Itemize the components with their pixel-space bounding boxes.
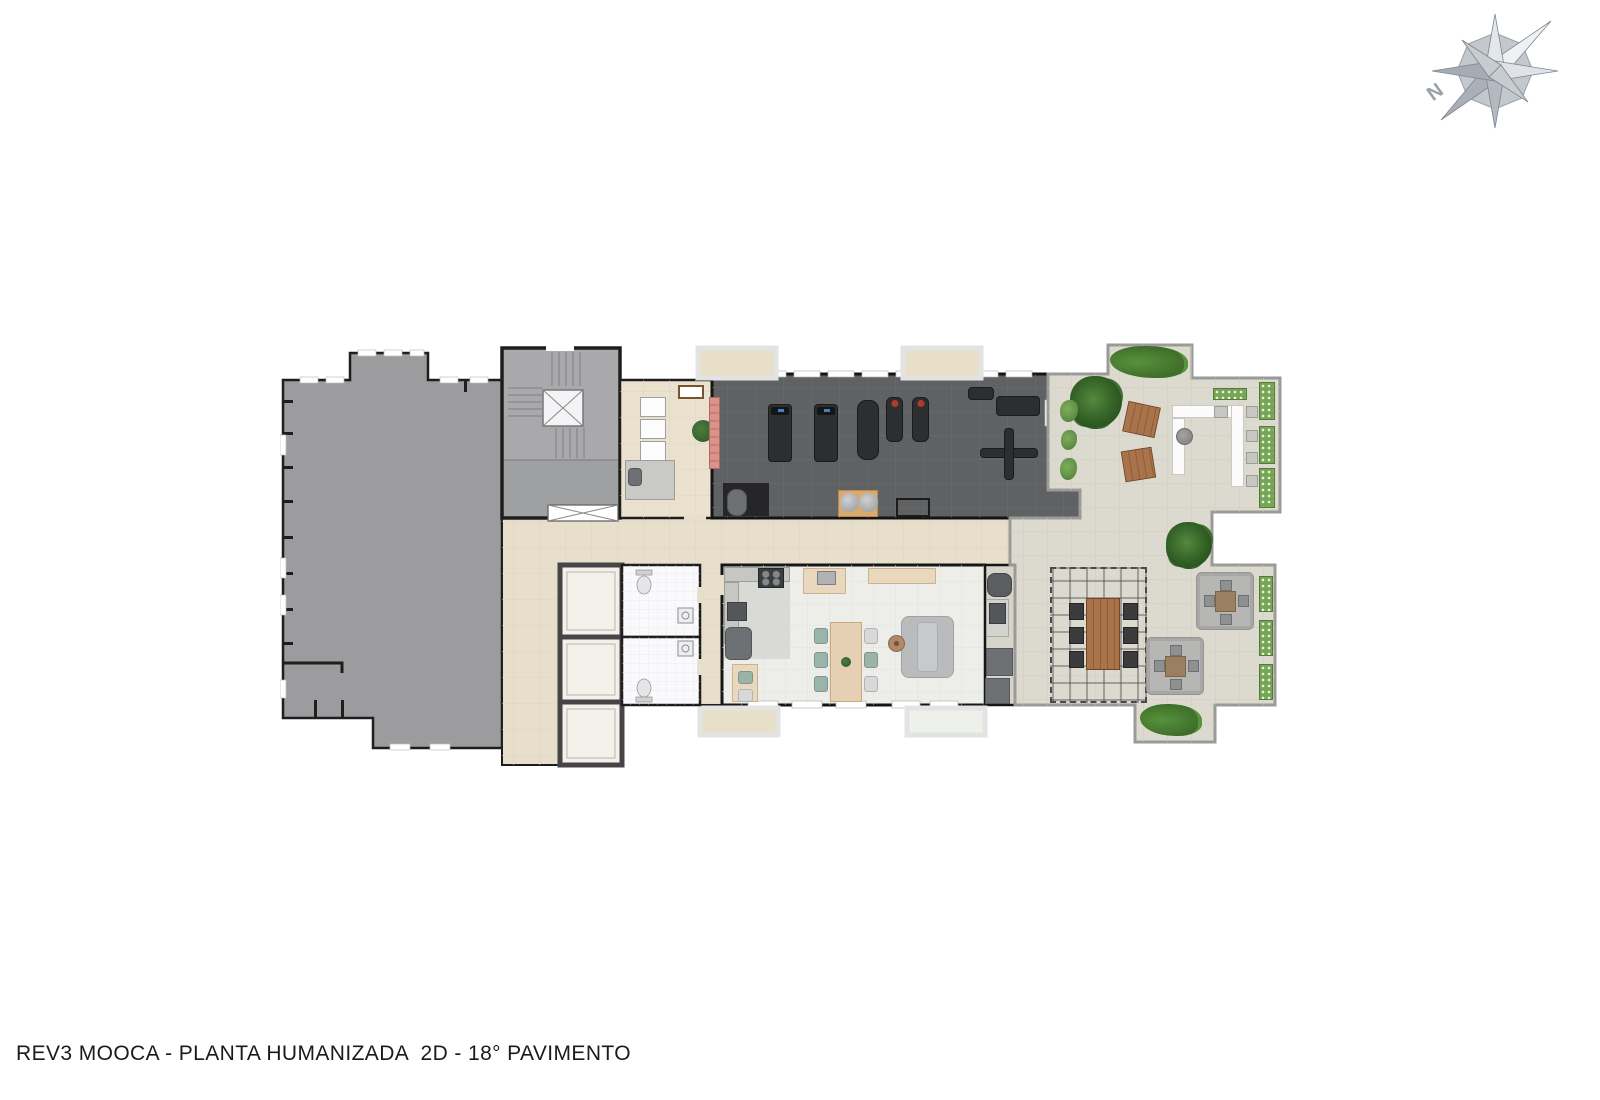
cabinet-box xyxy=(640,397,666,417)
hedge-planter xyxy=(1259,382,1275,420)
elevator-bank xyxy=(560,565,622,765)
hedge-planter xyxy=(1259,426,1275,464)
treadmill xyxy=(814,404,838,462)
cabinet-box xyxy=(640,419,666,439)
floor-plan xyxy=(280,340,1285,770)
cabinet-box xyxy=(640,441,666,461)
stool xyxy=(1246,452,1258,464)
barbecue-grill xyxy=(986,648,1013,676)
coffee-table xyxy=(888,635,905,652)
left-wing-area xyxy=(283,353,502,748)
chair xyxy=(738,671,753,684)
chair xyxy=(864,652,878,668)
multi-gym-bar xyxy=(1004,428,1014,480)
bench-seat xyxy=(709,397,720,469)
stool xyxy=(1246,430,1258,442)
shaft-hatch xyxy=(548,505,618,521)
chair xyxy=(864,628,878,644)
buffet-sink xyxy=(817,571,836,585)
outdoor-cooktop xyxy=(989,603,1006,624)
chair xyxy=(1123,603,1138,620)
chair xyxy=(1170,645,1182,656)
chair xyxy=(1220,580,1232,591)
plan-title: REV3 MOOCA - PLANTA HUMANIZADA 2D - 18° … xyxy=(16,1042,631,1066)
chair xyxy=(738,689,753,702)
chair xyxy=(1123,627,1138,644)
stair-door-opening xyxy=(546,345,574,351)
outdoor-dining-table xyxy=(1086,598,1120,670)
chair xyxy=(1069,627,1084,644)
wood-deck-lounger xyxy=(1122,401,1161,438)
exercise-ball xyxy=(840,493,859,512)
chair xyxy=(1220,614,1232,625)
treadmill xyxy=(768,404,792,462)
terrace-counter xyxy=(1231,405,1244,487)
chair xyxy=(1170,679,1182,690)
cooktop-stove xyxy=(758,568,784,588)
compass-star xyxy=(1432,14,1558,128)
water-dispenser xyxy=(727,489,747,516)
compass-rose: N xyxy=(1398,8,1578,143)
bathroom-1 xyxy=(622,565,703,637)
compass-north-label: N xyxy=(1423,79,1448,105)
chair xyxy=(814,628,828,644)
sideboard xyxy=(868,568,936,584)
stool xyxy=(1246,406,1258,418)
spin-bike xyxy=(912,397,929,442)
chair xyxy=(1069,603,1084,620)
elliptical-trainer xyxy=(857,400,879,460)
hedge-planter xyxy=(1259,576,1273,612)
floor-mat xyxy=(896,498,930,517)
bathroom-2 xyxy=(622,637,703,705)
spin-bike xyxy=(886,397,903,442)
chair xyxy=(1238,595,1249,607)
chair xyxy=(1188,660,1199,672)
support-room-door-opening xyxy=(684,514,706,521)
terrace-counter xyxy=(1172,418,1185,475)
bench-press xyxy=(996,396,1040,416)
hedge-planter xyxy=(1259,468,1275,508)
hedge-planter xyxy=(1259,664,1273,700)
chair xyxy=(814,652,828,668)
exercise-ball xyxy=(859,493,878,512)
page: N xyxy=(0,0,1600,1100)
patio-table xyxy=(1165,656,1186,677)
waste-bin xyxy=(628,468,642,486)
microwave xyxy=(727,602,747,621)
wood-deck-lounger xyxy=(1121,447,1156,482)
stool xyxy=(1246,475,1258,487)
stair-elevator-shaft xyxy=(543,390,583,426)
barbecue-grill xyxy=(985,678,1010,704)
dumbbell-rack xyxy=(968,387,994,400)
hedge-planter xyxy=(1259,620,1273,656)
chair xyxy=(814,676,828,692)
stone-feature xyxy=(1176,428,1193,445)
table-plant xyxy=(841,657,851,667)
kamado-grill xyxy=(987,573,1012,597)
chair xyxy=(1154,660,1165,672)
chair xyxy=(1069,651,1084,668)
chair xyxy=(864,676,878,692)
coffee-counter xyxy=(678,385,704,399)
stool xyxy=(1214,406,1228,418)
chair xyxy=(1204,595,1215,607)
refrigerator xyxy=(725,627,752,660)
patio-table xyxy=(1215,591,1236,612)
chair xyxy=(1123,651,1138,668)
sofa-cushion xyxy=(917,622,938,672)
hedge-planter xyxy=(1213,388,1247,400)
